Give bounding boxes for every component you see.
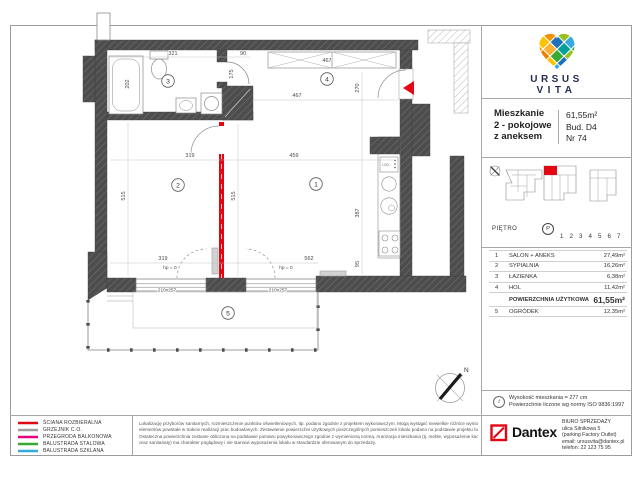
disclaimer-line: elementów powstałe w trakcie realizacji … — [139, 427, 478, 433]
radiators — [212, 248, 346, 276]
balustrade-posts — [88, 292, 318, 350]
floor-number-3: 3 — [576, 233, 586, 240]
room-no: 1 — [489, 253, 509, 259]
legend-item: ŚCIANA ROZBIERALNA — [17, 419, 112, 426]
dimension-label: 321 — [168, 51, 177, 57]
floor-number-4: 4 — [586, 233, 596, 240]
brand-name-line2: VITA — [481, 85, 632, 96]
legend-item: GRZEJNIK C.O. — [17, 426, 112, 433]
compass-north-label: N — [464, 367, 469, 374]
sill-height-label: hp = 0 — [163, 265, 177, 271]
dimension-label: 319 — [185, 153, 194, 159]
dimension-label: 387 — [355, 208, 361, 217]
legend-label: BALUSTRADA SZKLANA — [43, 448, 104, 454]
plan-legend: ŚCIANA ROZBIERALNA GRZEJNIK C.O. PRZEGRO… — [17, 419, 112, 455]
dantex-logo-icon — [489, 423, 509, 443]
heart-mosaic — [534, 30, 580, 73]
bottom-divider — [10, 415, 632, 416]
dimension-label: 202 — [125, 79, 131, 88]
divider — [482, 98, 632, 99]
legend-label: BALUSTRADA STALOWA — [43, 441, 105, 447]
room-no: 3 — [489, 274, 509, 280]
apartment-title-line2: 2 - pokojowe — [494, 120, 552, 132]
removable-wall — [219, 122, 224, 278]
building-left — [506, 170, 542, 200]
dimension-label: 319 — [158, 256, 167, 262]
window-size-label: 210x257 — [158, 288, 177, 294]
legend-swatch-icon — [17, 449, 39, 453]
room-no: 2 — [489, 263, 509, 269]
dantex-wordmark: Dantex — [512, 424, 557, 440]
dimension-label: 467 — [292, 93, 301, 99]
toilet-tank — [150, 51, 168, 59]
legend-swatch-icon — [17, 435, 39, 439]
tall-cabinet — [370, 137, 400, 154]
legend-swatch-icon — [17, 428, 39, 432]
wardrobe — [268, 52, 396, 68]
legend-label: ŚCIANA ROZBIERALNA — [43, 420, 102, 426]
dimension-label: 515 — [121, 191, 127, 200]
building-middle — [544, 166, 576, 200]
kitchen-fixtures: LOD. — [370, 137, 400, 258]
fridge-label: LOD. — [382, 163, 390, 167]
dimension-label: 515 — [231, 191, 237, 200]
disclaimer-line: oraz sanitariaty) ma charakter poglądowy… — [139, 440, 478, 446]
legend-item: BALUSTRADA STALOWA — [17, 441, 112, 448]
apartment-title-line3: z aneksem — [494, 131, 552, 143]
dimension-label: 562 — [304, 256, 313, 262]
floor-number-7: 7 — [614, 233, 624, 240]
window-size-label: 210x257 — [269, 288, 288, 294]
ursus-vita-logo — [534, 30, 580, 73]
room-name: ŁAZIENKA — [509, 274, 607, 280]
apartment-area: 61,55m² — [566, 110, 597, 122]
floor-plan: LOD. — [0, 0, 481, 455]
room-name: SALON + ANEKS — [509, 253, 604, 259]
room-name: HOL — [509, 285, 604, 291]
dimension-label: 459 — [289, 153, 298, 159]
total-label: POWIERZCHNIA UŻYTKOWA — [509, 297, 593, 303]
room-name: SYPIALNIA — [509, 263, 604, 269]
sales-office-info: BIURO SPRZEDAŻY ulica Silnikowa 5 (parki… — [562, 419, 630, 452]
legend-swatch-icon — [17, 442, 39, 446]
apartment-meta: 61,55m² Bud. D4 Nr 74 — [566, 110, 597, 145]
table-row: 4 HOL 11,42m² — [489, 282, 627, 293]
header-divider — [558, 110, 559, 144]
disclaimer: Lokalizację przyborów sanitarnych, rozmi… — [139, 421, 478, 446]
kitchen-sink — [382, 177, 396, 191]
floor-number-5: 5 — [595, 233, 605, 240]
room-area: 6,38m² — [607, 274, 627, 280]
building-right — [590, 170, 616, 201]
room-table: 1 SALON + ANEKS 27,49m² 2 SYPIALNIA 16,2… — [489, 250, 627, 317]
legend-label: GRZEJNIK C.O. — [43, 427, 82, 433]
legend-item: PRZEGRODA BALKONOWA — [17, 433, 112, 440]
room-marker: 4 — [325, 76, 329, 83]
bedroom-door — [191, 126, 219, 154]
floor-number-1: 1 — [557, 233, 567, 240]
brand-name-line1: URSUS — [481, 74, 632, 85]
floor-number-6: 6 — [605, 233, 615, 240]
room-marker: 5 — [226, 310, 230, 317]
table-row: 3 ŁAZIENKA 6,38m² — [489, 271, 627, 282]
room-area: 27,49m² — [604, 253, 627, 259]
site-location-diagram — [486, 162, 628, 220]
divider — [482, 390, 632, 391]
apartment-title: Mieszkanie 2 - pokojowe z aneksem — [494, 108, 552, 143]
floor-label: PIĘTRO — [492, 226, 517, 232]
dimension-label: 95 — [355, 261, 361, 267]
divider — [482, 247, 632, 248]
room-marker: 3 — [166, 78, 170, 85]
room-no: 5 — [489, 309, 509, 315]
room-no: 4 — [489, 285, 509, 291]
info-icon: i — [493, 396, 505, 408]
floor-number-2: 2 — [567, 233, 577, 240]
room-marker: 1 — [314, 181, 318, 188]
legend-label: PRZEGRODA BALKONOWA — [43, 434, 112, 440]
info-note: Wysokość mieszkania = 277 cm Powierzchni… — [509, 395, 624, 409]
legend-divider — [132, 415, 133, 455]
highlighted-unit — [544, 166, 557, 175]
divider — [482, 157, 632, 158]
table-row: 1 SALON + ANEKS 27,49m² — [489, 250, 627, 261]
floor-selected-badge: P — [542, 223, 554, 235]
compass-icon: N — [436, 367, 470, 403]
note-norm: Powierzchnie liczone wg normy ISO 9836:1… — [509, 402, 624, 409]
apartment-building: Bud. D4 — [566, 122, 597, 134]
disclaimer-line: Ostateczna powierzchnia zostanie obliczo… — [139, 434, 478, 440]
room-area: 12,35m² — [604, 309, 627, 315]
radiator-salon — [320, 271, 346, 276]
note-height: Wysokość mieszkania = 277 cm — [509, 395, 624, 402]
table-row: 2 SYPIALNIA 16,26m² — [489, 261, 627, 272]
apartment-number: Nr 74 — [566, 133, 597, 145]
floor-numbers: 1234567 — [557, 225, 624, 243]
garden — [88, 292, 318, 350]
dimension-label: 270 — [355, 83, 361, 92]
site-compass-icon — [490, 166, 500, 176]
dimension-label: 90 — [240, 51, 246, 57]
total-row: POWIERZCHNIA UŻYTKOWA 61,55m² — [489, 292, 627, 306]
table-row: 5 OGRÓDEK 12,35m² — [489, 306, 627, 318]
radiator-bedroom — [212, 248, 218, 274]
legend-swatch-icon — [17, 421, 39, 425]
dimension-label: 467 — [322, 58, 331, 64]
balcony-door-bedroom — [177, 249, 206, 278]
sill-height-label: hp = 0 — [279, 265, 293, 271]
dimension-label: 175 — [229, 69, 235, 78]
room-area: 11,42m² — [604, 285, 627, 291]
apartment-title-line1: Mieszkanie — [494, 108, 552, 120]
office-line: telefon: 22 123 75 95 — [562, 445, 630, 452]
legend-item: BALUSTRADA SZKLANA — [17, 448, 112, 455]
room-area: 16,26m² — [604, 263, 627, 269]
balcony-door-salon — [246, 249, 275, 278]
room-marker: 2 — [176, 182, 180, 189]
installation-shaft — [222, 86, 253, 120]
apartment-card: LOD. — [0, 0, 640, 480]
room-name: OGRÓDEK — [509, 309, 604, 315]
total-value: 61,55m² — [593, 295, 627, 305]
